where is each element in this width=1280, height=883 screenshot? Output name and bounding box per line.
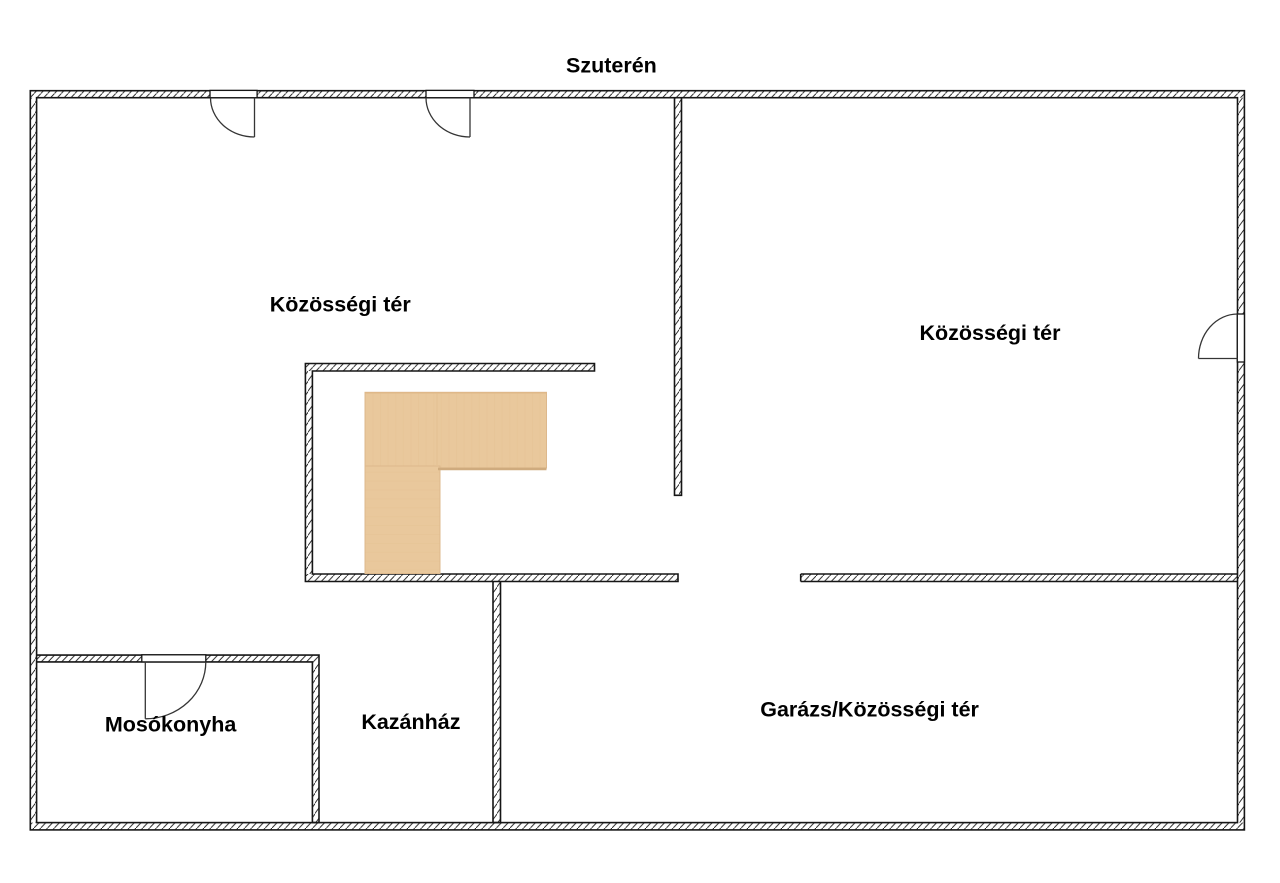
svg-text:Mosókonyha: Mosókonyha — [105, 713, 237, 737]
svg-text:Közösségi tér: Közösségi tér — [270, 292, 412, 316]
svg-text:Kazánház: Kazánház — [361, 710, 460, 734]
svg-text:Szuterén: Szuterén — [566, 54, 657, 78]
svg-text:Garázs/Közösségi tér: Garázs/Közösségi tér — [760, 697, 979, 721]
svg-text:Közösségi tér: Közösségi tér — [920, 321, 1062, 345]
